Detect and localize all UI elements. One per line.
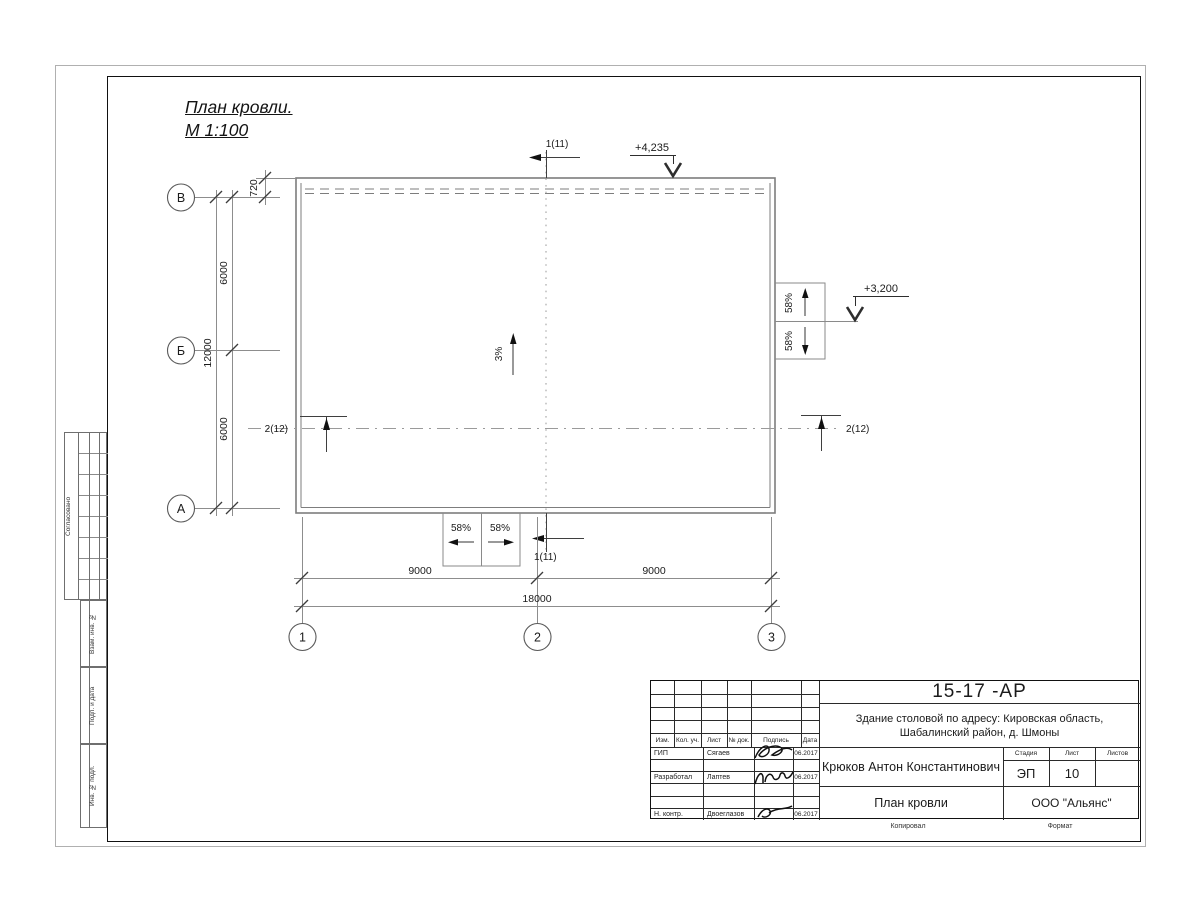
section-mark-arrows: [323, 154, 825, 542]
sheet-label: Лист: [1049, 747, 1095, 760]
slope-roof: 3%: [494, 347, 505, 362]
axis-label-b: Б: [177, 344, 185, 358]
row-gip-name: Сягаев: [707, 747, 753, 759]
col-kol: Кол. уч.: [674, 733, 701, 747]
col-doc: № док.: [727, 733, 751, 747]
company-name: ООО "Альянс": [1003, 786, 1140, 820]
format-label: Формат: [1020, 823, 1100, 830]
dim-9000-left: 9000: [408, 565, 432, 577]
dim-18000: 18000: [522, 593, 551, 605]
row-ncontr-name: Двоеглазов: [707, 808, 753, 820]
slope-arrows: [456, 296, 805, 542]
section-trace-lines: [248, 152, 836, 556]
sheet-number: 10: [1049, 760, 1095, 786]
dim-12000: 12000: [202, 338, 214, 367]
row-gip-role: ГИП: [654, 747, 702, 759]
elevation-roof: +4,235: [635, 142, 669, 154]
signature-developer: [752, 765, 794, 787]
row-ncontr-date: 06.2017: [793, 808, 819, 820]
project-line2: Шабалинский район, д. Шмоны: [900, 726, 1060, 740]
signature-gip: [752, 741, 794, 763]
row-dev-name: Лаптев: [707, 771, 753, 783]
row-ncontr-role: Н. контр.: [654, 808, 702, 820]
col-date: Дата: [801, 733, 819, 747]
axis-circles: [168, 184, 786, 651]
col-izm: Изм.: [651, 733, 674, 747]
canopy-bottom: [443, 513, 520, 566]
axis-label-a: А: [177, 502, 186, 516]
slope-canopy-right-down: 58%: [784, 331, 795, 351]
building-outline: [296, 178, 775, 513]
axis-label-3: 3: [768, 631, 775, 645]
row-dev-date: 06.2017: [793, 771, 819, 783]
signature-ncontr: [752, 801, 794, 823]
document-code: 15-17 -АР: [819, 681, 1140, 703]
slope-canopy-right-up: 58%: [784, 293, 795, 313]
stage-label: Стадия: [1003, 747, 1049, 760]
dim-6000-top: 6000: [218, 261, 230, 285]
dimension-lines: [195, 170, 780, 623]
dim-720: 720: [248, 179, 260, 197]
section-2-left: 2(12): [265, 424, 288, 435]
section-1-top: 1(11): [546, 139, 569, 150]
copied-by-label: Копировал: [868, 823, 948, 830]
axis-label-1: 1: [299, 631, 306, 645]
document-name: План кровли: [819, 786, 1003, 820]
title-block: Изм. Кол. уч. Лист № док. Подпись Дата Г…: [650, 680, 1139, 819]
row-gip-date: 06.2017: [793, 747, 819, 759]
dimension-ticks: [210, 172, 777, 612]
slope-canopy-bottom-right: 58%: [490, 523, 510, 534]
sheets-label: Листов: [1095, 747, 1140, 760]
axis-label-2: 2: [534, 631, 541, 645]
author-name: Крюков Антон Константинович: [819, 747, 1003, 786]
dim-9000-right: 9000: [642, 565, 666, 577]
section-2-right: 2(12): [846, 424, 869, 435]
project-description: Здание столовой по адресу: Кировская обл…: [819, 705, 1140, 747]
section-marks: [300, 150, 841, 552]
dim-6000-bottom: 6000: [218, 417, 230, 441]
stage-value: ЭП: [1003, 760, 1049, 786]
project-line1: Здание столовой по адресу: Кировская обл…: [856, 712, 1104, 726]
slope-arrowheads: [448, 288, 809, 546]
section-1-bottom: 1(11): [534, 552, 557, 563]
axis-label-v: В: [177, 191, 185, 205]
row-dev-role: Разработал: [654, 771, 702, 783]
elevation-canopy: +3,200: [864, 283, 898, 295]
col-list: Лист: [701, 733, 727, 747]
slope-canopy-bottom-left: 58%: [451, 523, 471, 534]
